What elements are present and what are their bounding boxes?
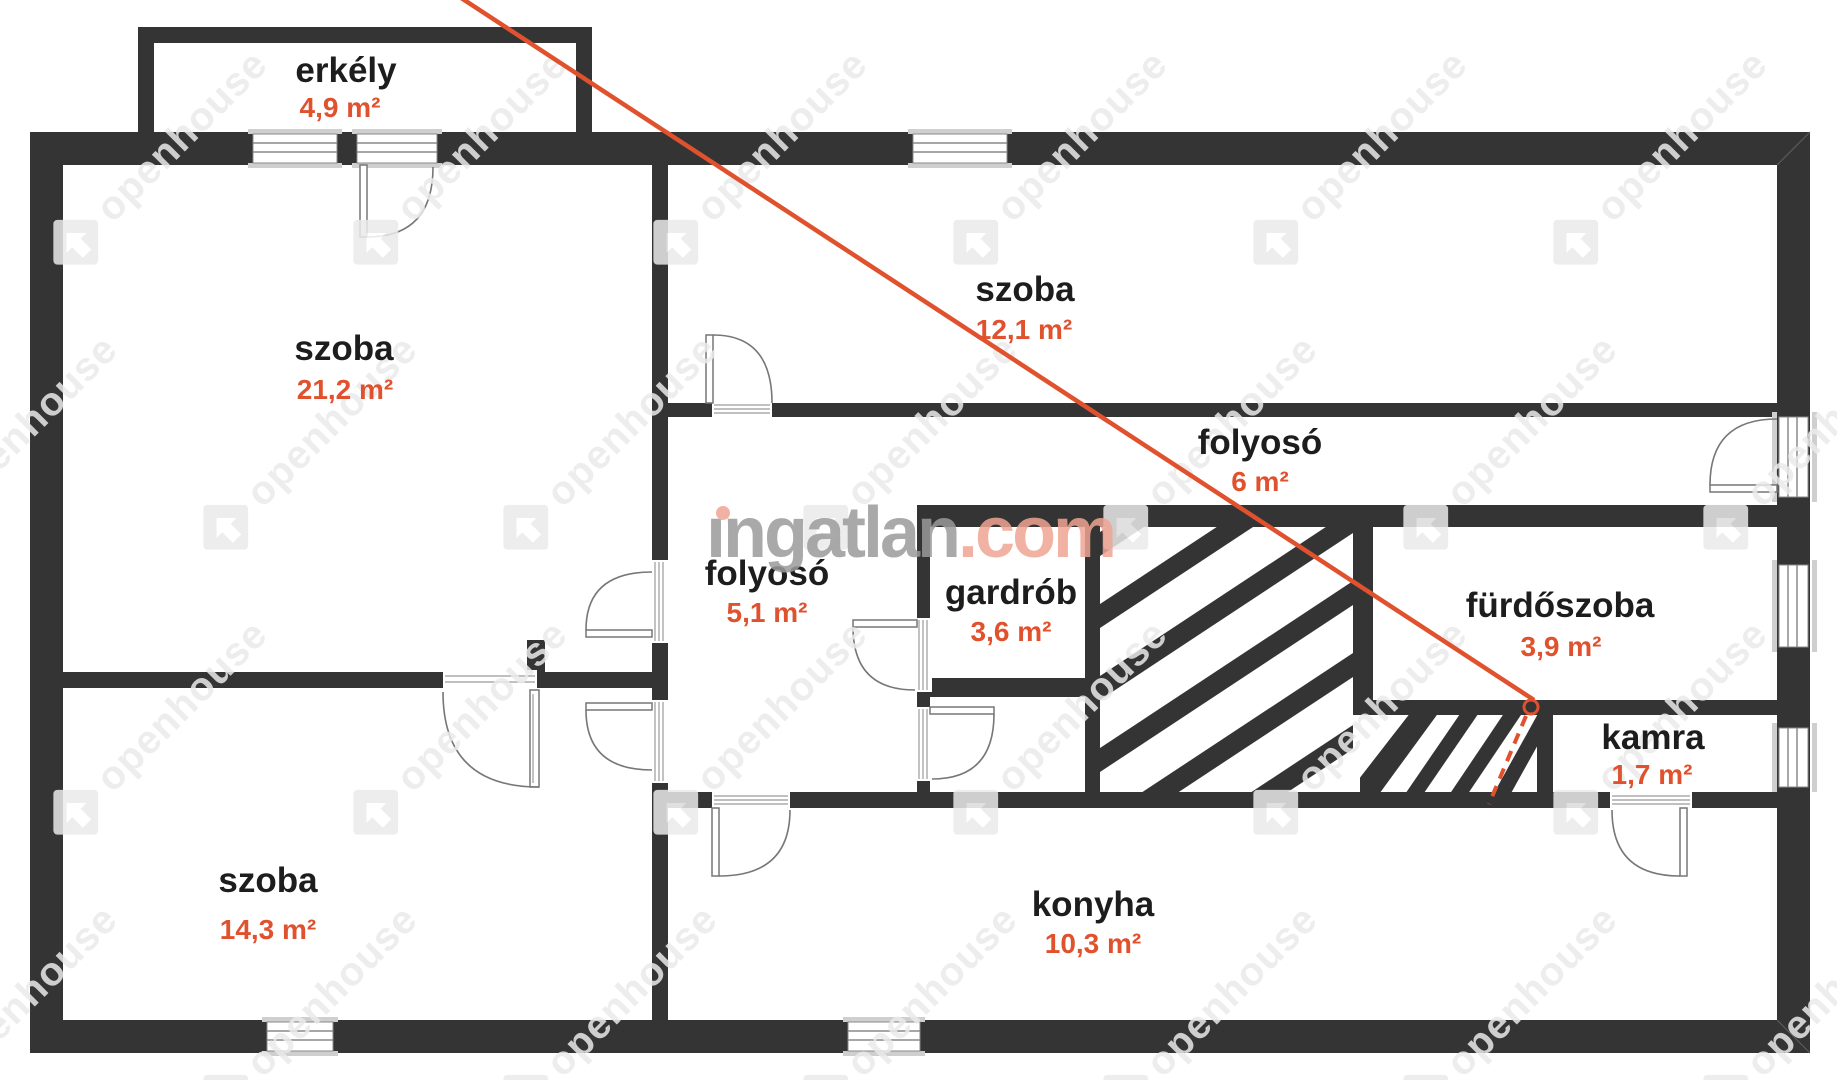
- openhouse-logo-tile: openhouse: [1389, 324, 1629, 564]
- openhouse-logo-tile: openhouse: [639, 609, 879, 849]
- room-area-szoba-12: 12,1 m²: [976, 314, 1073, 345]
- room-label-szoba-21: szoba: [294, 329, 394, 368]
- door-wardrobe: [853, 618, 932, 692]
- window-balcony-left: [248, 129, 342, 168]
- room-area-erkely: 4,9 m²: [300, 92, 381, 123]
- room-area-szoba-14: 14,3 m²: [220, 914, 317, 945]
- room-label-szoba-14: szoba: [218, 861, 318, 900]
- watermark-accent-text: .com: [958, 493, 1114, 573]
- svg-text:openhouse: openhouse: [1438, 327, 1626, 515]
- door-szoba14: [586, 700, 670, 783]
- openhouse-logo-tile: openhouse: [1689, 324, 1837, 564]
- openhouse-logo-tile: openhouse: [489, 324, 729, 564]
- room-label-konyha: konyha: [1032, 885, 1155, 924]
- openhouse-logo-tile: openhouse: [0, 324, 129, 564]
- svg-text:openhouse: openhouse: [0, 327, 126, 515]
- openhouse-logo-tile: openhouse: [39, 609, 279, 849]
- room-label-kamra: kamra: [1601, 718, 1705, 757]
- room-label-szoba-12: szoba: [975, 270, 1075, 309]
- openhouse-logo-tile: openhouse: [339, 609, 579, 849]
- svg-text:openhouse: openhouse: [538, 327, 726, 515]
- room-label-erkely: erkély: [295, 51, 397, 90]
- room-area-folyoso-51: 5,1 m²: [727, 597, 808, 628]
- window-top-szoba: [908, 129, 1012, 168]
- door-pantry: [1610, 791, 1692, 876]
- room-label-furdoszoba: fürdőszoba: [1466, 586, 1655, 625]
- svg-text:openhouse: openhouse: [688, 612, 876, 800]
- window-bathroom: [1772, 560, 1817, 652]
- room-area-folyoso-6: 6 m²: [1231, 466, 1289, 497]
- room-area-gardrob: 3,6 m²: [971, 616, 1052, 647]
- room-area-kamra: 1,7 m²: [1612, 759, 1693, 790]
- svg-text:openhouse: openhouse: [838, 327, 1026, 515]
- door-kitchen: [712, 790, 790, 876]
- window-pantry: [1772, 723, 1817, 792]
- watermark-gray-text: ıngatlan: [706, 493, 958, 573]
- svg-text:openhouse: openhouse: [388, 612, 576, 800]
- room-area-konyha: 10,3 m²: [1045, 928, 1142, 959]
- door-szoba21: [586, 560, 670, 643]
- door-szoba12: [706, 335, 772, 419]
- door-stair-landing: [915, 707, 994, 781]
- room-label-folyoso-6: folyosó: [1198, 423, 1322, 462]
- svg-text:openhouse: openhouse: [88, 612, 276, 800]
- watermark-i-dot: [716, 506, 730, 520]
- floor-plan-image: openhouseopenhouseopenhouseopenhouseopen…: [0, 0, 1837, 1080]
- ingatlan-watermark: ıngatlan.com: [706, 492, 1114, 574]
- room-area-szoba-21: 21,2 m²: [297, 374, 394, 405]
- room-area-furdoszoba: 3,9 m²: [1521, 631, 1602, 662]
- room-label-gardrob: gardrób: [945, 573, 1077, 612]
